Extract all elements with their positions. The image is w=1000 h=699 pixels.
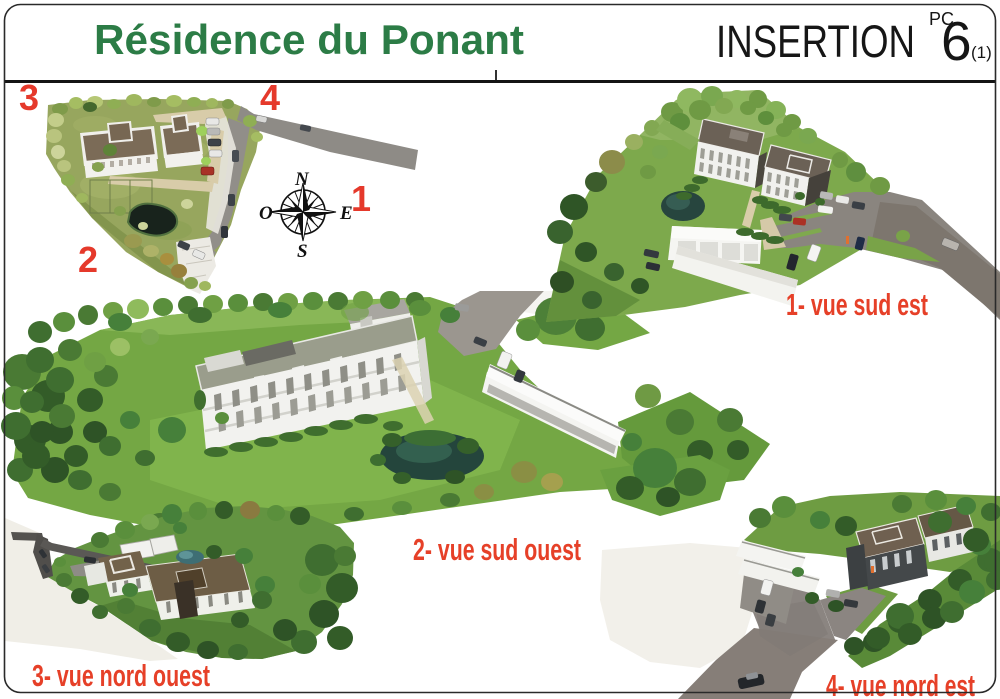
svg-text:1- vue sud est: 1- vue sud est [786,287,928,322]
svg-text:3: 3 [19,77,39,118]
svg-text:2: 2 [78,239,98,280]
svg-text:E: E [339,203,353,224]
svg-text:O: O [259,203,273,224]
svg-text:4- vue nord est: 4- vue nord est [826,668,975,699]
svg-text:(1): (1) [971,43,992,62]
svg-text:INSERTION: INSERTION [716,16,915,67]
svg-text:2- vue sud ouest: 2- vue sud ouest [413,532,581,567]
svg-text:4: 4 [260,77,280,118]
svg-text:1: 1 [351,178,371,219]
svg-text:N: N [294,169,310,190]
svg-text:6: 6 [941,10,972,72]
svg-text:3- vue nord ouest: 3- vue nord ouest [32,658,210,693]
svg-text:S: S [297,241,308,262]
svg-text:Résidence du Ponant: Résidence du Ponant [94,16,524,63]
